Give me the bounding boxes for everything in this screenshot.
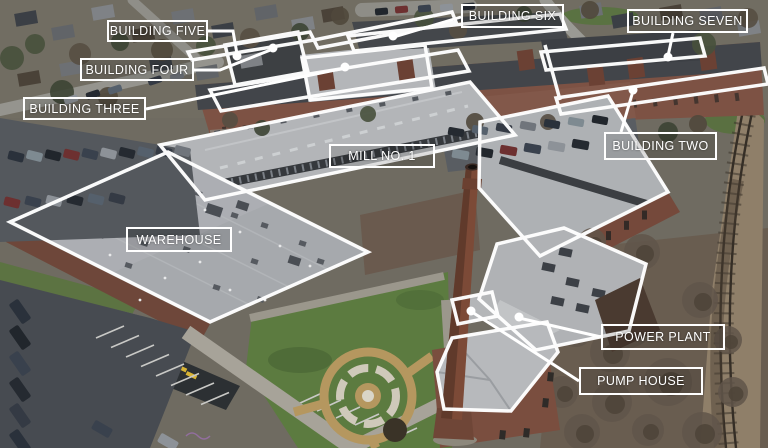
- bare-tree-shadow: [724, 335, 738, 349]
- label-building-four: BUILDING FOUR: [80, 58, 194, 81]
- leader-dot-icon: [467, 307, 476, 316]
- facade-window: [523, 428, 530, 438]
- tree: [581, 1, 599, 19]
- facade-window: [542, 398, 549, 408]
- labyrinth-center: [362, 390, 374, 402]
- tree: [360, 106, 376, 122]
- label-building-six: BUILDING SIX: [461, 4, 564, 28]
- roof-speck: [109, 254, 112, 257]
- leader-dot-icon: [269, 44, 278, 53]
- bare-tree-shadow: [605, 394, 625, 414]
- leader-dot-icon: [233, 52, 242, 61]
- label-building-seven: BUILDING SEVEN: [627, 9, 748, 33]
- lawn-patch: [396, 290, 444, 310]
- bare-tree-shadow: [694, 293, 712, 311]
- car: [440, 3, 454, 11]
- leader-dot-icon: [341, 63, 350, 72]
- roof-speck: [199, 261, 202, 264]
- label-power-plant: POWER PLANT: [601, 324, 725, 350]
- leader-dot-icon: [629, 86, 638, 95]
- tree: [331, 7, 349, 25]
- facade-window: [642, 211, 647, 220]
- roof-speck: [164, 277, 167, 280]
- roof-speck: [229, 289, 232, 292]
- leader-dot-icon: [389, 32, 398, 41]
- bare-tree-shadow: [643, 424, 659, 440]
- brick-tower: [517, 49, 536, 71]
- tree: [25, 34, 45, 54]
- brick-tower: [397, 59, 416, 81]
- aerial-site-map: BUILDING FIVE BUILDING FOUR BUILDING THR…: [0, 0, 768, 448]
- roof-speck: [139, 299, 142, 302]
- roof-speck: [309, 265, 312, 268]
- chimney-flue: [468, 165, 477, 169]
- facade-window: [624, 221, 629, 230]
- label-building-five: BUILDING FIVE: [107, 20, 208, 42]
- bare-tree-shadow: [557, 386, 573, 402]
- leader-dot-icon: [664, 53, 673, 62]
- car: [395, 5, 409, 13]
- brick-tower: [587, 65, 606, 87]
- bare-tree-shadow: [576, 425, 594, 443]
- roof-speck: [239, 231, 242, 234]
- label-mill-no-1: MILL NO. 1: [329, 144, 435, 168]
- facade-window: [606, 231, 611, 240]
- bare-tree-shadow: [729, 387, 744, 402]
- roof-speck: [279, 245, 282, 248]
- label-building-two: BUILDING TWO: [604, 132, 717, 160]
- tree: [0, 46, 24, 70]
- facade-window: [499, 430, 506, 440]
- lawn-patch: [268, 347, 332, 373]
- car: [418, 4, 432, 12]
- label-building-three: BUILDING THREE: [23, 97, 146, 120]
- mulch-bed: [383, 418, 407, 442]
- bare-tree-shadow: [695, 424, 715, 444]
- tree: [222, 112, 238, 128]
- roof-speck: [204, 209, 207, 212]
- label-pump-house: PUMP HOUSE: [579, 367, 703, 395]
- label-warehouse: WAREHOUSE: [126, 227, 232, 252]
- facade-window: [547, 372, 554, 382]
- leader-dot-icon: [515, 313, 524, 322]
- tree: [689, 115, 707, 133]
- car: [375, 7, 389, 15]
